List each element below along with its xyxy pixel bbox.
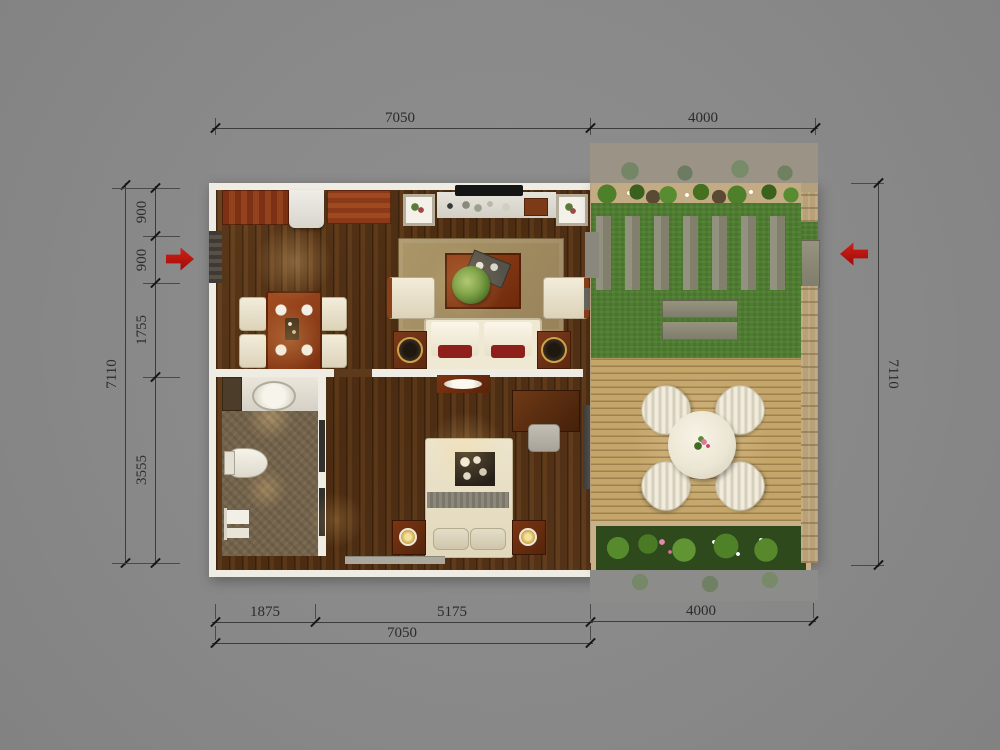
dim-extension — [143, 377, 180, 378]
dining-chair — [319, 334, 347, 368]
dim-extension — [315, 604, 316, 619]
side-table-left — [393, 331, 427, 369]
tv-screen — [455, 185, 523, 196]
desk-chair — [528, 424, 560, 452]
dim-bottom-garden: 4000 — [671, 603, 731, 619]
speaker — [397, 337, 423, 363]
potted-plant — [452, 266, 490, 304]
dim-extension — [813, 603, 814, 618]
side-table-right — [537, 331, 571, 369]
side-gate-step — [585, 232, 599, 278]
wall-frame-right — [556, 194, 588, 226]
wall-frame-left — [403, 194, 435, 226]
nightstand-left — [392, 520, 426, 555]
bedside-lamp — [519, 528, 537, 546]
bedside-lamp — [399, 528, 417, 546]
garden-faded-top — [590, 143, 818, 183]
sliding-door-panel — [319, 488, 325, 536]
dim-extension — [112, 188, 180, 189]
dim-left-segment: 900 — [134, 201, 151, 224]
garden-shrub-border-top — [591, 183, 801, 203]
dim-bottom-house: 7050 — [372, 625, 432, 641]
bedroom-shelf — [437, 375, 490, 393]
bathroom-sink — [252, 381, 296, 411]
kitchen-cabinet-left — [222, 190, 289, 225]
paver-row — [596, 216, 798, 290]
entrance-arrow-right-icon — [840, 242, 868, 266]
garden-faded-bottom — [590, 570, 818, 601]
bed-art-panel — [455, 452, 495, 486]
toilet-tank — [224, 451, 235, 475]
paver-horizontal — [662, 300, 738, 318]
shower-fixture — [224, 508, 249, 540]
bed-runner-band — [427, 492, 509, 508]
dim-extension — [143, 236, 180, 237]
armchair-right — [543, 277, 589, 319]
dim-line-bottom-house — [212, 643, 593, 644]
stepping-paver — [801, 240, 820, 288]
paver-horizontal — [662, 321, 738, 340]
armchair-left — [387, 277, 435, 319]
sofa-throw-pillow — [491, 345, 525, 358]
kitchen-cabinet-right — [327, 190, 391, 224]
dim-left-segment: 3555 — [134, 455, 151, 485]
interior-wall — [216, 369, 583, 377]
dim-bottom-segment: 5175 — [422, 604, 482, 620]
dim-left-segment: 1755 — [134, 315, 151, 345]
entrance-arrow-left-icon — [166, 247, 194, 271]
dim-line-bottom-segments — [212, 622, 593, 623]
dim-left-segment: 900 — [134, 249, 151, 272]
bed-pillow — [433, 528, 469, 550]
dining-chair — [239, 297, 267, 331]
dim-right-total: 7110 — [884, 359, 901, 388]
speaker — [541, 337, 567, 363]
dim-line-top — [212, 128, 818, 129]
console-decor — [444, 199, 516, 213]
dim-extension — [215, 604, 216, 619]
dim-line-right-total — [878, 181, 879, 567]
console-cabinet — [524, 198, 548, 216]
shelf-plate — [444, 379, 482, 389]
dim-left-total: 7110 — [104, 359, 121, 388]
nightstand-right — [512, 520, 546, 555]
dining-chair — [239, 334, 267, 368]
refrigerator — [289, 190, 324, 228]
dim-top-house: 7050 — [370, 110, 430, 126]
vanity-cabinet — [222, 377, 242, 411]
floor-plan-canvas: 7050 4000 7110 900 900 1755 3555 7110 18… — [0, 0, 1000, 750]
patio-sliding-door — [583, 405, 590, 489]
dim-extension — [590, 626, 591, 640]
dining-table-centerpiece — [285, 318, 299, 340]
dim-extension — [143, 283, 180, 284]
dining-chair — [319, 297, 347, 331]
dim-line-bottom-garden — [590, 621, 816, 622]
bed-pillow — [470, 528, 506, 550]
dim-top-garden: 4000 — [673, 110, 733, 126]
dim-line-left-total — [125, 183, 126, 565]
stone-pillar — [801, 192, 818, 222]
dim-bottom-segment: 1875 — [235, 604, 295, 620]
dim-extension — [215, 626, 216, 640]
sofa-throw-pillow — [438, 345, 472, 358]
sliding-door-panel — [319, 420, 325, 472]
entrance-porch-wall — [209, 231, 222, 283]
patio-table-flowers — [691, 434, 713, 454]
bottom-window — [345, 556, 445, 564]
hall-doorway — [334, 369, 372, 377]
stone-wall-right — [801, 286, 818, 563]
dim-extension — [590, 604, 591, 619]
dim-extension — [112, 563, 180, 564]
